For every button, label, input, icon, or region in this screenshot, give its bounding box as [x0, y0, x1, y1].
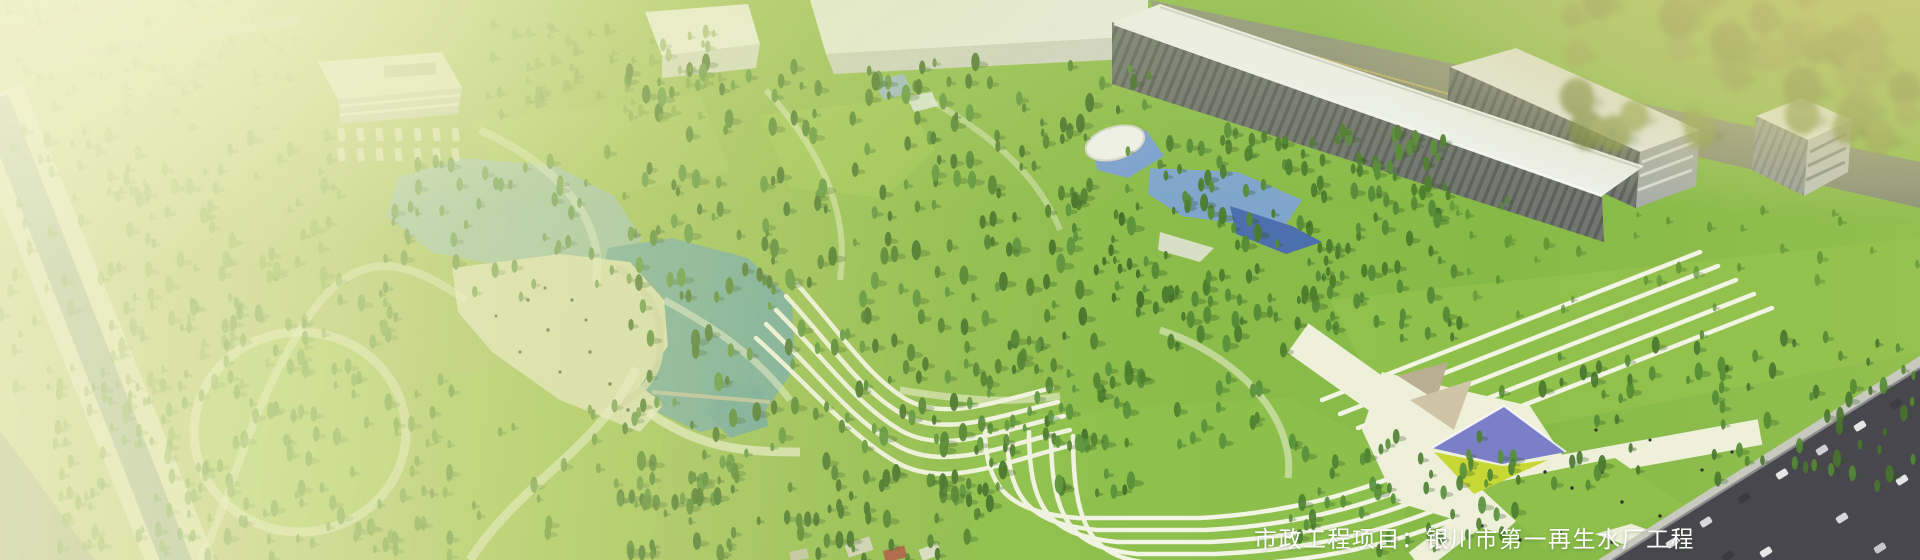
aerial-rendering [0, 0, 1920, 560]
project-caption: 市政工程项目：银川市第一再生水厂工程 [1254, 520, 1695, 554]
hero-banner: 市政工程项目：银川市第一再生水厂工程 [0, 0, 1920, 560]
